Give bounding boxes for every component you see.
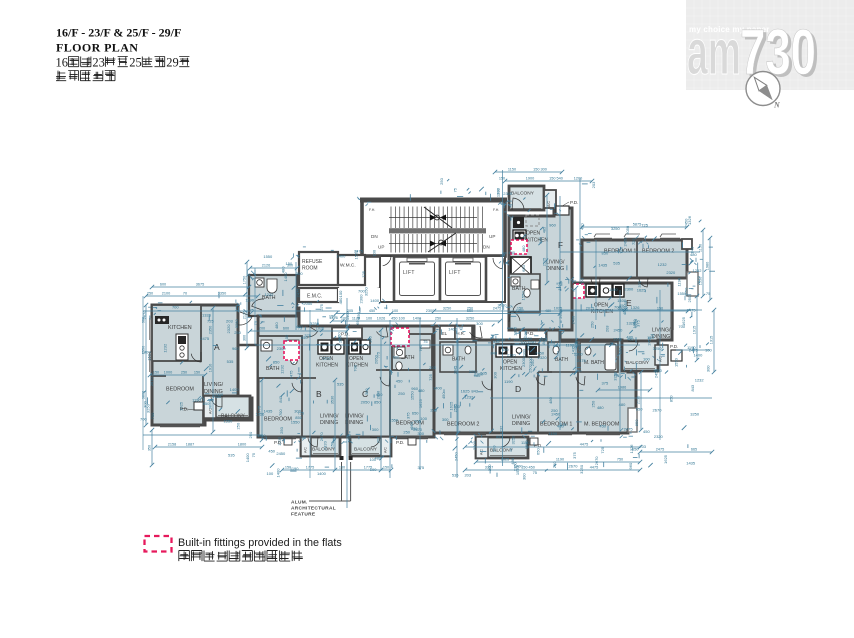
svg-text:843: 843 [689,246,694,253]
svg-text:2050: 2050 [625,225,630,235]
svg-text:150: 150 [647,335,654,340]
svg-text:1326: 1326 [629,444,634,454]
svg-text:F: F [558,241,563,250]
svg-text:450: 450 [356,311,361,318]
svg-text:1550: 1550 [673,357,678,367]
svg-text:843: 843 [471,388,478,393]
svg-text:450: 450 [396,378,403,383]
svg-text:203: 203 [605,325,610,332]
svg-text:650: 650 [636,407,643,412]
svg-text:3530: 3530 [330,396,334,404]
svg-text:480: 480 [274,322,279,329]
svg-text:A/C: A/C [384,447,388,453]
svg-text:DN: DN [371,234,378,239]
svg-text:203: 203 [430,408,437,413]
svg-text:LIVING/: LIVING/ [652,328,671,334]
svg-text:1435: 1435 [598,262,608,267]
svg-text:300: 300 [476,321,483,326]
svg-text:2130: 2130 [636,396,640,404]
svg-text:250: 250 [687,295,692,302]
svg-text:FLOOR PLAN: FLOOR PLAN [56,41,138,55]
svg-text:850: 850 [496,434,503,439]
svg-text:200: 200 [259,326,265,330]
svg-text:1750: 1750 [242,276,246,284]
svg-text:A/C: A/C [304,447,308,453]
svg-text:600: 600 [283,326,289,330]
svg-text:2450: 2450 [571,316,575,324]
svg-text:850: 850 [669,395,674,402]
svg-text:1232: 1232 [695,378,705,383]
svg-text:LIVING/: LIVING/ [546,260,565,266]
svg-text:3250: 3250 [690,411,700,416]
svg-text:375: 375 [572,451,577,458]
svg-text:2300: 2300 [474,372,484,377]
svg-text:2050: 2050 [374,354,379,364]
svg-text:375: 375 [405,412,410,419]
svg-text:1400: 1400 [230,387,240,392]
svg-text:A/C: A/C [480,449,484,455]
svg-text:KITCHEN: KITCHEN [316,363,338,369]
svg-text:960: 960 [411,386,418,391]
svg-text:1190: 1190 [257,433,266,438]
svg-text:150: 150 [286,261,293,266]
svg-text:535: 535 [227,359,234,364]
svg-text:960: 960 [232,346,239,351]
svg-text:700: 700 [358,289,365,294]
svg-text:375: 375 [417,465,424,470]
svg-text:480: 480 [557,424,564,429]
svg-text:ALUM.: ALUM. [291,500,308,506]
svg-text:1550: 1550 [263,254,273,259]
svg-text:2450: 2450 [654,368,659,378]
svg-text:1986: 1986 [618,385,626,389]
svg-text:100: 100 [370,467,377,472]
svg-text:665: 665 [691,447,697,451]
svg-text:2300: 2300 [277,346,287,351]
svg-text:E.M.C.: E.M.C. [307,294,322,300]
svg-text:203: 203 [376,437,380,443]
svg-text:1910: 1910 [208,364,212,372]
svg-text:1400: 1400 [514,463,524,468]
svg-text:UP: UP [378,245,384,250]
svg-text:1550: 1550 [223,419,233,424]
svg-text:725: 725 [600,446,605,453]
svg-text:450: 450 [526,343,531,350]
svg-text:1915: 1915 [692,326,696,334]
svg-text:250: 250 [403,430,410,435]
svg-text:2050: 2050 [514,337,524,342]
svg-text:75: 75 [706,291,711,296]
svg-text:203: 203 [591,181,596,188]
svg-text:250: 250 [580,277,585,284]
svg-text:150: 150 [657,306,663,310]
svg-text:725: 725 [361,270,366,277]
svg-text:250: 250 [181,370,187,374]
svg-text:75: 75 [251,452,256,457]
svg-text:1326: 1326 [626,321,636,326]
svg-text:1025: 1025 [554,306,562,310]
svg-text:F.H.: F.H. [369,208,375,212]
svg-text:700: 700 [150,412,155,419]
svg-text:250: 250 [551,408,558,413]
svg-text:535: 535 [493,339,500,344]
svg-text:1400: 1400 [617,298,627,303]
svg-text:250: 250 [492,445,497,452]
svg-text:ROOM: ROOM [302,266,318,272]
svg-text:203: 203 [464,472,471,477]
svg-text:ARCHITECTURAL: ARCHITECTURAL [291,506,336,512]
svg-text:450: 450 [296,324,303,329]
svg-text:300: 300 [242,335,246,341]
svg-text:4475: 4475 [580,442,588,446]
svg-text:850: 850 [374,400,381,405]
svg-text:100: 100 [372,249,377,256]
svg-text:DINING: DINING [512,421,530,427]
svg-text:480: 480 [280,266,285,273]
svg-text:DINING: DINING [320,420,338,426]
svg-text:535: 535 [228,453,235,458]
svg-text:1550: 1550 [520,291,525,301]
svg-text:1980: 1980 [705,262,709,270]
svg-text:3250: 3250 [234,319,239,329]
svg-text:2475: 2475 [296,288,301,298]
svg-text:LIVING/: LIVING/ [204,382,224,388]
svg-text:150: 150 [383,465,389,469]
svg-text:1190: 1190 [504,379,513,384]
svg-text:480: 480 [418,388,425,393]
svg-text:BEDROOM 2: BEDROOM 2 [642,249,674,255]
svg-text:A: A [214,342,220,352]
svg-text:2670: 2670 [558,309,563,319]
svg-text:1190: 1190 [676,277,681,286]
svg-text:BATH: BATH [452,357,465,363]
svg-text:480: 480 [622,308,627,315]
svg-text:350: 350 [147,445,151,451]
svg-text:750: 750 [617,457,623,461]
svg-text:LIVING/: LIVING/ [345,414,364,420]
svg-text:480: 480 [375,455,382,460]
svg-text:1550: 1550 [410,390,415,400]
svg-text:1200: 1200 [574,176,582,180]
svg-text:2050: 2050 [361,400,371,405]
svg-text:450: 450 [599,423,606,428]
svg-text:1435: 1435 [686,460,696,465]
svg-text:100: 100 [338,290,343,297]
svg-text:300: 300 [522,473,527,480]
svg-text:100: 100 [643,357,650,362]
svg-text:2450: 2450 [337,332,342,342]
svg-text:B: B [316,389,322,399]
svg-text:850: 850 [634,419,639,426]
svg-text:1625: 1625 [178,401,183,411]
svg-text:100: 100 [367,335,372,342]
svg-text:450: 450 [369,309,375,313]
svg-text:2670: 2670 [696,275,701,285]
svg-text:1026: 1026 [316,326,324,330]
svg-text:2475: 2475 [656,447,664,451]
svg-text:480: 480 [619,402,626,407]
svg-text:450: 450 [376,392,383,397]
svg-text:725: 725 [207,319,214,324]
svg-text:OPEN: OPEN [526,231,541,237]
svg-text:25: 25 [129,56,142,70]
svg-text:100: 100 [420,416,427,421]
svg-text:am: am [687,16,741,88]
svg-text:1625: 1625 [461,388,471,393]
svg-text:2050: 2050 [303,301,313,306]
svg-text:1326: 1326 [513,326,518,336]
svg-text:2670: 2670 [142,310,147,320]
svg-text:650: 650 [536,447,541,454]
svg-text:485: 485 [542,227,546,233]
svg-text:1400: 1400 [276,468,281,478]
svg-text:1232: 1232 [264,292,274,297]
svg-text:LIVING/: LIVING/ [320,414,339,420]
svg-text:2670: 2670 [569,464,579,469]
svg-text:450 100: 450 100 [391,316,405,320]
svg-text:1326: 1326 [202,312,212,317]
svg-text:1190: 1190 [245,298,254,303]
svg-text:EL: EL [442,331,448,336]
svg-text:250: 250 [248,431,253,438]
svg-text:650: 650 [301,335,308,340]
svg-text:75: 75 [533,470,538,475]
svg-text:1326: 1326 [613,336,623,341]
svg-text:2300: 2300 [521,357,526,367]
svg-text:300: 300 [372,427,379,432]
svg-text:D: D [515,384,521,394]
svg-text:2320: 2320 [322,440,327,450]
svg-text:535: 535 [452,473,459,478]
svg-text:P.D.: P.D. [396,440,404,445]
svg-text:2450: 2450 [613,328,623,333]
svg-text:P.D.: P.D. [670,344,678,349]
svg-text:300: 300 [496,187,501,194]
svg-text:100: 100 [453,404,460,409]
svg-text:480: 480 [627,337,634,342]
svg-text:150 300: 150 300 [533,167,547,171]
svg-text:5875: 5875 [633,222,641,226]
svg-text:300: 300 [296,271,303,276]
svg-text:1625: 1625 [418,398,423,408]
svg-text:BEDROOM: BEDROOM [166,387,194,393]
svg-text:2320: 2320 [523,336,533,341]
svg-text:100: 100 [366,316,372,320]
svg-text:250: 250 [147,291,153,295]
svg-text:1232: 1232 [163,343,168,353]
svg-text:1400: 1400 [345,310,350,320]
svg-text:250: 250 [439,177,444,184]
svg-text:1900: 1900 [526,176,534,180]
svg-text:1550: 1550 [389,418,399,423]
svg-text:375: 375 [636,319,641,326]
svg-text:DN: DN [483,245,490,250]
svg-text:3250: 3250 [511,435,516,445]
svg-text:1400: 1400 [336,253,346,258]
svg-text:LIFT: LIFT [449,270,461,276]
svg-text:300: 300 [417,431,424,436]
svg-text:75: 75 [453,187,458,192]
svg-text:2450: 2450 [276,451,286,456]
svg-text:2300: 2300 [528,357,533,367]
svg-text:1190: 1190 [290,466,299,471]
svg-text:960: 960 [628,462,633,469]
svg-text:2475: 2475 [577,358,587,363]
svg-text:203: 203 [429,365,436,370]
svg-text:1150: 1150 [698,244,702,252]
svg-text:850: 850 [295,415,302,420]
svg-text:KITCHEN: KITCHEN [168,325,192,331]
svg-text:1625: 1625 [448,401,453,411]
svg-text:75: 75 [253,320,258,325]
svg-text:650: 650 [412,411,419,416]
svg-text:2350: 2350 [208,326,212,334]
svg-text:BATH: BATH [266,366,280,372]
svg-text:2158: 2158 [168,442,176,446]
svg-text:480: 480 [508,250,515,255]
svg-text:1315: 1315 [709,336,713,344]
svg-text:BEDROOM 2: BEDROOM 2 [447,422,479,428]
svg-text:1190: 1190 [548,431,557,436]
svg-text:700: 700 [353,364,358,371]
svg-text:Built-in fittings provided in: Built-in fittings provided in the flats [178,537,342,549]
svg-text:300: 300 [442,417,449,422]
svg-text:1550: 1550 [291,419,301,424]
svg-text:70: 70 [183,291,187,295]
svg-text:3250: 3250 [611,226,621,231]
svg-text:1232: 1232 [280,364,285,374]
svg-text:2475: 2475 [624,427,634,432]
svg-text:DINING: DINING [546,266,564,272]
svg-text:960: 960 [393,354,400,359]
svg-text:16/F - 23/F & 25/F - 29/F: 16/F - 23/F & 25/F - 29/F [56,26,181,40]
svg-text:3250: 3250 [310,321,320,326]
svg-text:2126: 2126 [242,311,246,319]
svg-text:250: 250 [590,321,595,328]
svg-text:150: 150 [194,370,200,374]
svg-text:725: 725 [428,373,433,380]
svg-text:FEATURE: FEATURE [291,512,316,518]
svg-text:650: 650 [355,317,360,324]
svg-text:2670: 2670 [653,408,663,413]
svg-text:150 450: 150 450 [521,465,535,469]
svg-text:150: 150 [329,314,336,319]
svg-text:2320: 2320 [666,270,676,275]
svg-text:1026: 1026 [377,316,385,320]
svg-text:250: 250 [234,330,241,335]
svg-text:1232: 1232 [322,355,332,360]
svg-text:1190: 1190 [687,345,696,350]
svg-text:250: 250 [236,422,241,429]
svg-text:2670: 2670 [498,303,508,308]
svg-text:2300: 2300 [503,191,513,196]
svg-text:DINING: DINING [652,334,670,340]
svg-text:250: 250 [467,306,473,310]
svg-text:450: 450 [643,429,650,434]
svg-text:REFUSE: REFUSE [302,259,323,265]
svg-text:450: 450 [268,449,275,454]
svg-text:375: 375 [637,280,642,287]
svg-text:2126: 2126 [262,263,270,267]
svg-text:700: 700 [140,417,147,422]
svg-text:2450: 2450 [623,237,628,247]
svg-text:BALCONY: BALCONY [511,191,535,197]
svg-text:480: 480 [597,405,604,410]
svg-text:2300: 2300 [359,294,364,304]
svg-text:UP: UP [489,234,495,239]
svg-text:2300: 2300 [624,287,634,292]
svg-text:480: 480 [521,245,526,252]
svg-text:A/C: A/C [547,201,551,208]
svg-text:480: 480 [548,396,553,403]
svg-text:843: 843 [548,340,555,345]
svg-text:3250: 3250 [579,464,584,474]
svg-text:DINING: DINING [345,420,363,426]
svg-text:960: 960 [549,222,556,227]
svg-text:A/C: A/C [659,356,663,362]
svg-text:BALCONY: BALCONY [354,447,378,453]
svg-text:203: 203 [226,319,233,324]
svg-text:700: 700 [418,344,423,351]
svg-text:OPEN: OPEN [349,356,364,362]
svg-text:725: 725 [641,223,648,228]
svg-text:1825: 1825 [501,457,509,461]
svg-text:850: 850 [203,401,210,406]
svg-text:2100: 2100 [162,291,170,295]
svg-text:150: 150 [499,176,505,180]
svg-text:75: 75 [423,339,428,344]
svg-text:375: 375 [602,380,609,385]
svg-text:1435: 1435 [263,408,273,413]
svg-text:250: 250 [435,316,441,320]
svg-text:2320: 2320 [507,353,517,358]
svg-text:250: 250 [590,400,595,407]
svg-text:250: 250 [528,365,533,372]
svg-text:1190: 1190 [192,398,201,403]
svg-text:700: 700 [172,304,179,309]
svg-text:2300: 2300 [472,440,477,450]
svg-text:W.M.C.: W.M.C. [340,263,356,269]
svg-text:1400: 1400 [693,353,703,358]
svg-text:3250: 3250 [653,346,663,351]
svg-text:100: 100 [267,471,274,476]
svg-text:300: 300 [492,371,497,378]
svg-text:850: 850 [273,360,280,365]
svg-text:2300: 2300 [574,352,584,357]
svg-text:LIFT: LIFT [403,270,415,276]
svg-text:843: 843 [278,395,283,402]
svg-text:23: 23 [92,56,105,70]
svg-text:450: 450 [580,223,585,230]
svg-text:1400: 1400 [370,298,380,303]
svg-text:1550: 1550 [353,250,358,260]
svg-text:725: 725 [619,246,624,253]
svg-text:16: 16 [56,56,69,70]
svg-text:2320: 2320 [226,324,231,334]
svg-text:1000: 1000 [164,370,172,374]
svg-text:3250: 3250 [146,403,151,413]
svg-text:2670: 2670 [149,376,154,386]
svg-text:150: 150 [517,306,523,310]
svg-text:BATH: BATH [555,357,568,363]
svg-text:2320: 2320 [654,434,664,439]
svg-text:300: 300 [705,365,710,372]
svg-text:1550: 1550 [677,291,687,296]
svg-text:600: 600 [160,282,166,286]
svg-text:150: 150 [153,370,159,374]
svg-text:2475: 2475 [289,370,294,380]
svg-text:2475: 2475 [200,336,210,341]
